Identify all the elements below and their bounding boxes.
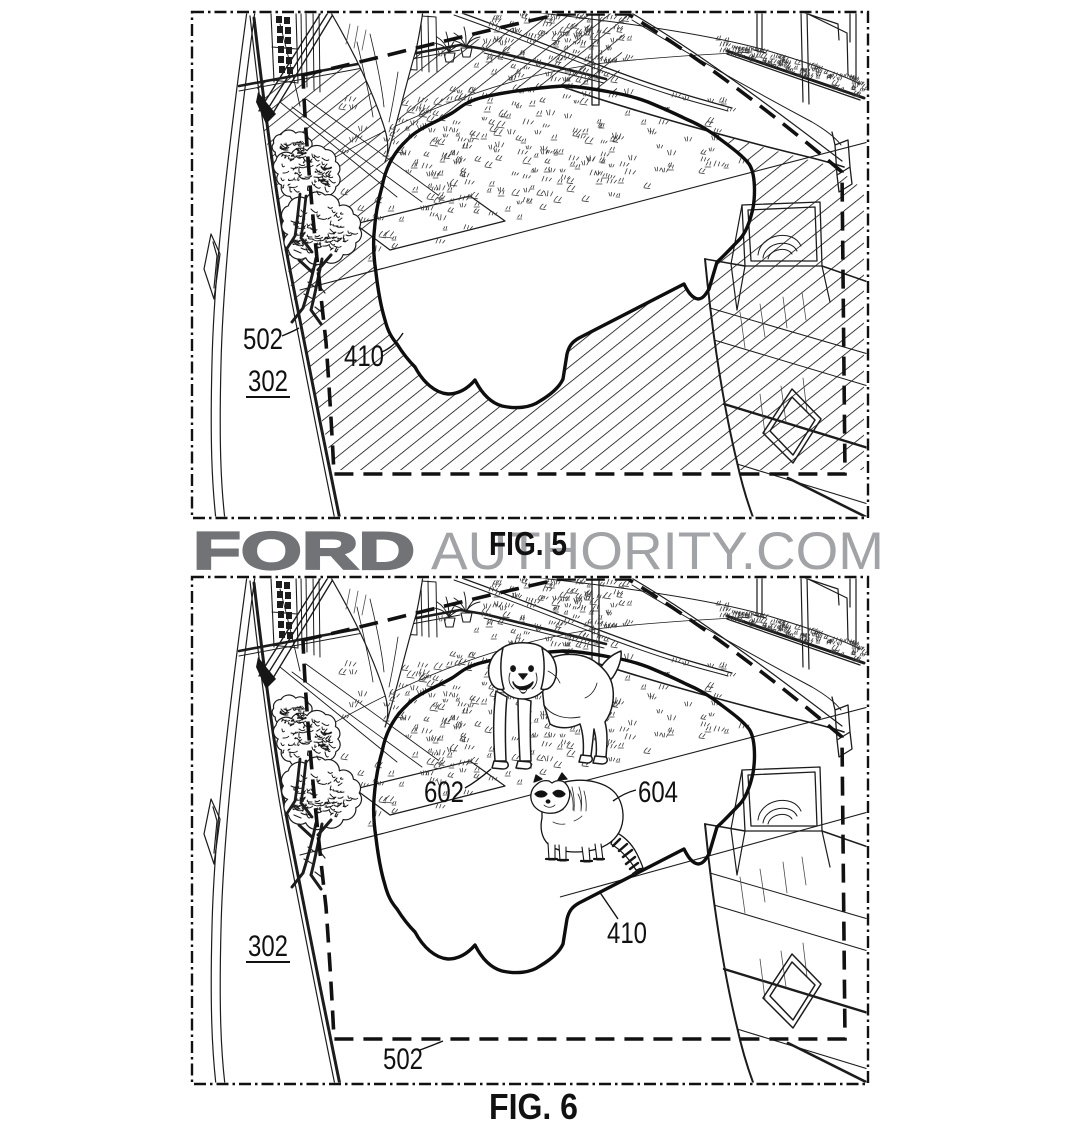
svg-text:FIG. 5: FIG. 5 xyxy=(489,525,567,562)
svg-text:602: 602 xyxy=(424,776,464,809)
svg-text:604: 604 xyxy=(638,776,678,809)
svg-text:410: 410 xyxy=(344,340,384,373)
svg-text:502: 502 xyxy=(243,323,283,356)
svg-text:FIG. 6: FIG. 6 xyxy=(489,1086,578,1127)
svg-text:FORD: FORD xyxy=(193,522,415,581)
svg-text:410: 410 xyxy=(607,917,647,950)
svg-text:302: 302 xyxy=(248,930,288,963)
svg-text:302: 302 xyxy=(248,365,288,398)
svg-text:502: 502 xyxy=(383,1043,423,1076)
